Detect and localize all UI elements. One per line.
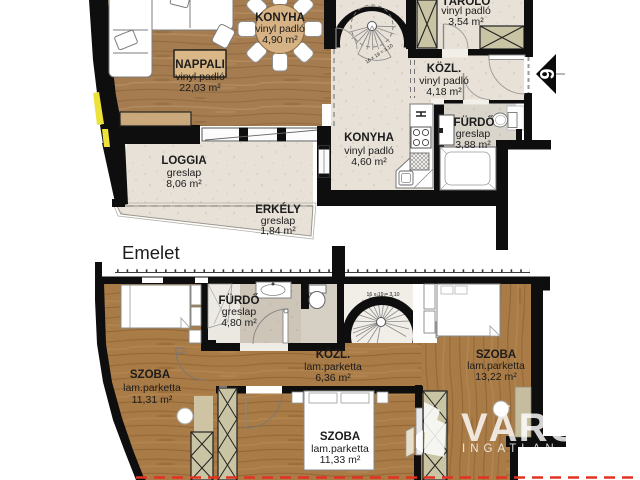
svg-text:8,06 m²: 8,06 m²	[166, 178, 202, 190]
svg-text:3,54 m²: 3,54 m²	[448, 16, 484, 28]
svg-text:KONYHA: KONYHA	[344, 132, 394, 144]
svg-text:1,84 m²: 1,84 m²	[260, 225, 296, 237]
svg-text:KÖZL.: KÖZL.	[316, 348, 351, 361]
svg-text:6,36 m²: 6,36 m²	[315, 372, 351, 384]
svg-text:SZOBA: SZOBA	[130, 369, 170, 381]
svg-text:NAPPALI: NAPPALI	[175, 59, 225, 71]
svg-text:22,03 m²: 22,03 m²	[179, 82, 221, 94]
svg-text:13,22 m²: 13,22 m²	[475, 371, 517, 383]
svg-text:3,88 m²: 3,88 m²	[455, 139, 491, 151]
svg-text:11,31 m²: 11,31 m²	[132, 394, 173, 406]
svg-text:LOGGIA: LOGGIA	[161, 155, 206, 167]
svg-text:Emelet: Emelet	[122, 242, 180, 263]
svg-text:lam.parketta: lam.parketta	[123, 382, 181, 394]
svg-text:SZOBA: SZOBA	[320, 431, 360, 443]
svg-text:4,18 m²: 4,18 m²	[426, 86, 462, 98]
svg-text:11,33 m²: 11,33 m²	[320, 454, 361, 466]
svg-text:4,90 m²: 4,90 m²	[262, 34, 298, 46]
svg-text:KÖZL.: KÖZL.	[427, 62, 462, 75]
svg-text:6: 6	[535, 68, 557, 79]
svg-text:16 x 19 = 3,10: 16 x 19 = 3,10	[366, 292, 399, 298]
svg-text:4,60 m²: 4,60 m²	[351, 156, 387, 168]
svg-text:INGATLAN: INGATLAN	[462, 443, 559, 455]
svg-text:4,80 m²: 4,80 m²	[221, 317, 257, 329]
